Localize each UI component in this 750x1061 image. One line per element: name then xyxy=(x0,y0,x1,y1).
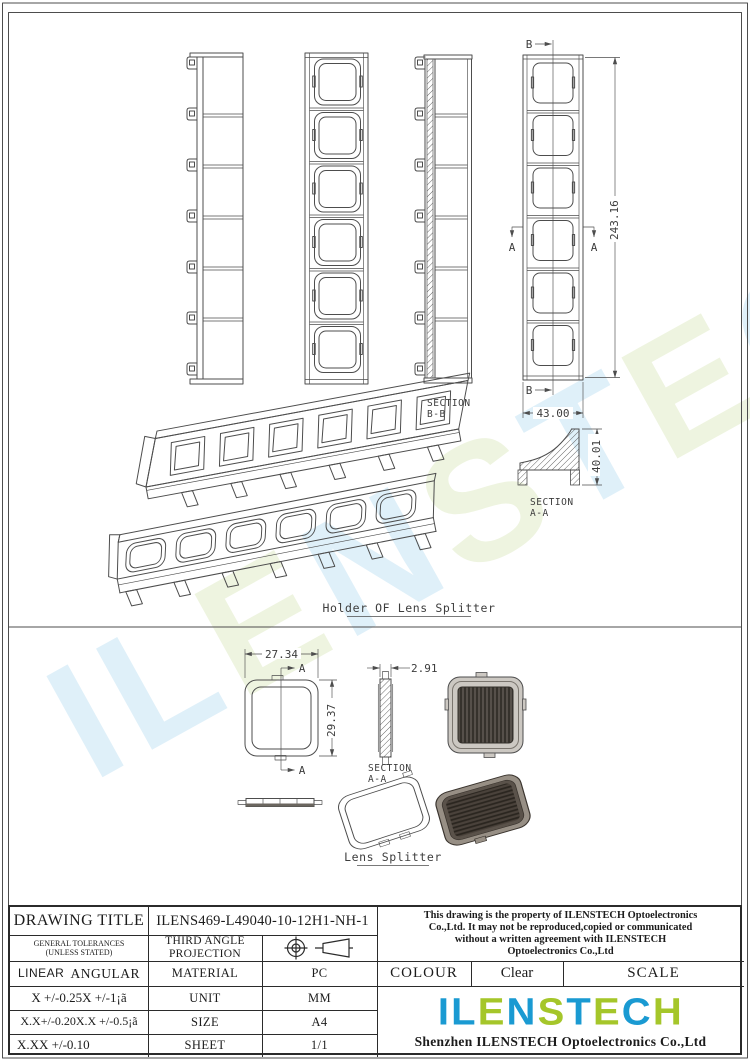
property-line3: without a written agreement with ILENSTE… xyxy=(455,934,666,946)
cad-views: SECTION B-B B xyxy=(0,0,750,1061)
section-aa-label-line1: SECTION xyxy=(530,497,574,508)
marker-b-bottom: B xyxy=(526,384,533,397)
sheet-value: 1/1 xyxy=(262,1034,377,1057)
dim-43: 43.00 xyxy=(536,407,569,420)
colour-label: COLOUR xyxy=(377,961,471,986)
sheet-frame xyxy=(3,3,748,1058)
property-line1: This drawing is the property of ILENSTEC… xyxy=(424,910,698,922)
dim-291: 2.91 xyxy=(411,662,438,675)
general-tolerances-heading: GENERAL TOLERANCES (UNLESS STATED) xyxy=(10,935,148,961)
linear-label: LINEAR xyxy=(18,967,64,981)
drawing-title-label: DRAWING TITLE xyxy=(10,907,148,935)
dim-27: 27.34 xyxy=(265,648,298,661)
general-tolerances-line2: (UNLESS STATED) xyxy=(46,948,113,957)
dim-40: 40.01 xyxy=(590,440,603,473)
logo-letter: L xyxy=(451,991,478,1033)
marker-b-top: B xyxy=(526,38,533,51)
holder-section-aa-view: 40.01 SECTION A-A xyxy=(518,429,603,519)
general-tolerances-line1: GENERAL TOLERANCES xyxy=(34,939,125,948)
tolerance-row-1: X +/-0.25 X +/-1¡ã xyxy=(10,986,148,1010)
company-block: ILENSTECH Shenzhen ILENSTECH Optoelectro… xyxy=(377,986,744,1057)
linear-angular-heading: LINEAR ANGULAR xyxy=(10,961,148,986)
drawing-number: ILENS469-L49040-10-12H1-NH-1 xyxy=(148,907,377,935)
third-angle-projection-icon xyxy=(281,936,359,960)
holder-front-view xyxy=(305,53,368,384)
holder-iso-bottom xyxy=(101,471,450,609)
tolerance-linear-1: X +/-0.25 xyxy=(31,991,82,1006)
lens-title: Lens Splitter xyxy=(344,850,442,864)
material-label: MATERIAL xyxy=(148,961,262,986)
scale-label: SCALE xyxy=(563,961,744,986)
company-name: Shenzhen ILENSTECH Optoelectronics Co.,L… xyxy=(415,1034,707,1050)
third-angle-symbol-cell xyxy=(262,935,377,961)
tolerance-row-2: X.X+/-0.20 X.X +/-0.5¡ã xyxy=(10,1010,148,1034)
logo-letter: S xyxy=(537,991,566,1033)
holder-title: Holder OF Lens Splitter xyxy=(322,601,495,615)
holder-side-view xyxy=(187,53,243,384)
projection-line1: THIRD ANGLE xyxy=(165,935,245,948)
marker-a-right: A xyxy=(591,241,598,254)
ilenstech-logo: ILENSTECH xyxy=(437,993,683,1031)
logo-letter: I xyxy=(437,991,450,1033)
title-block: DRAWING TITLE ILENS469-L49040-10-12H1-NH… xyxy=(8,905,742,1055)
lens-marker-a-top: A xyxy=(299,662,306,675)
sheet-label: SHEET xyxy=(148,1034,262,1057)
tolerance-angular-2: X.X +/-0.5¡ã xyxy=(76,1015,138,1029)
dim-29: 29.37 xyxy=(325,704,338,737)
holder-section-bb-view: SECTION B-B xyxy=(415,55,472,420)
unit-value: MM xyxy=(262,986,377,1010)
holder-dimensioned-view: B B A A 243.16 43.00 xyxy=(509,38,621,420)
projection-line2: PROJECTION xyxy=(169,948,241,961)
lens-marker-a-bottom: A xyxy=(299,764,306,777)
colour-value: Clear xyxy=(471,961,563,986)
lens-iso-shaded-view xyxy=(433,772,533,852)
lens-section-view: 2.91 SECTION A-A xyxy=(367,662,438,785)
unit-label: UNIT xyxy=(148,986,262,1010)
logo-letter: E xyxy=(477,991,506,1033)
size-value: A4 xyxy=(262,1010,377,1034)
tolerance-angular-1: X +/-1¡ã xyxy=(82,991,127,1006)
projection-label: THIRD ANGLE PROJECTION xyxy=(148,935,262,961)
property-line2: Co.,Ltd. It may not be reproduced,copied… xyxy=(429,922,693,934)
lens-front-view: A A 27.34 29.37 xyxy=(245,648,338,777)
dim-243: 243.16 xyxy=(608,200,621,240)
lens-side-profile-view xyxy=(238,799,322,807)
logo-letter: E xyxy=(593,991,622,1033)
angular-label: ANGULAR xyxy=(71,966,141,982)
logo-letter: T xyxy=(566,991,593,1033)
tolerance-row-3: X.XX +/-0.10 xyxy=(10,1034,148,1057)
size-label: SIZE xyxy=(148,1010,262,1034)
section-bb-label-line2: B-B xyxy=(427,409,446,420)
tolerance-linear-2: X.X+/-0.20 xyxy=(20,1015,75,1029)
drawing-sheet: ILENSTECH xyxy=(0,0,750,1061)
material-value: PC xyxy=(262,961,377,986)
tolerance-linear-3: X.XX +/-0.10 xyxy=(17,1038,90,1053)
logo-letter: C xyxy=(621,991,652,1033)
marker-a-left: A xyxy=(509,241,516,254)
lens-shaded-front-view xyxy=(445,673,526,758)
property-line4: Optoelectronics Co.,Ltd xyxy=(507,946,613,958)
logo-letter: H xyxy=(652,991,683,1033)
logo-letter: N xyxy=(506,991,537,1033)
holder-iso-top xyxy=(127,373,484,515)
section-aa-label-line2: A-A xyxy=(530,508,549,519)
property-notice: This drawing is the property of ILENSTEC… xyxy=(377,907,744,961)
